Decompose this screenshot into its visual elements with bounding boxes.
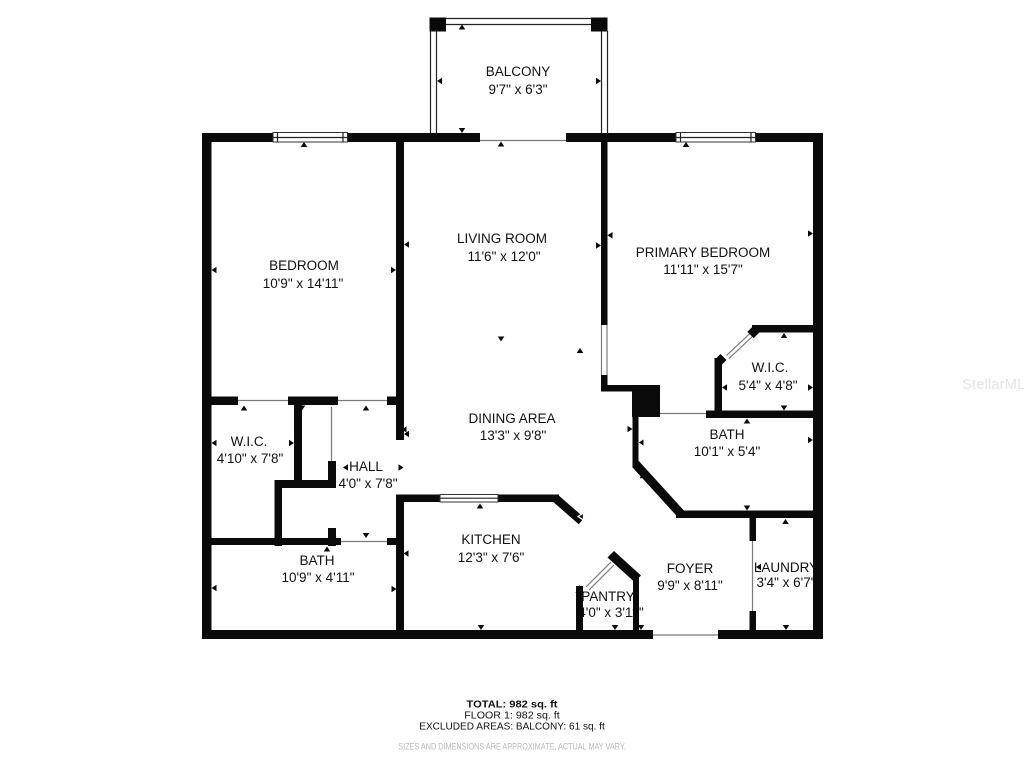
svg-text:StellarMLS: StellarMLS (962, 376, 1024, 393)
svg-text:DINING AREA: DINING AREA (468, 411, 555, 426)
svg-text:13'3" x 9'8": 13'3" x 9'8" (480, 428, 547, 443)
svg-text:4'0" x 7'8": 4'0" x 7'8" (338, 476, 397, 491)
svg-text:KITCHEN: KITCHEN (461, 532, 520, 547)
svg-text:11'6" x 12'0": 11'6" x 12'0" (467, 249, 540, 264)
svg-text:BALCONY: BALCONY (486, 64, 551, 79)
svg-text:PRIMARY BEDROOM: PRIMARY BEDROOM (636, 245, 771, 260)
svg-text:BEDROOM: BEDROOM (269, 258, 339, 273)
svg-text:W.I.C.: W.I.C. (752, 360, 789, 375)
svg-text:HALL: HALL (349, 459, 383, 474)
svg-text:EXCLUDED AREAS: BALCONY: 61 sq: EXCLUDED AREAS: BALCONY: 61 sq. ft (419, 720, 605, 732)
svg-text:3'4" x 6'7": 3'4" x 6'7" (756, 575, 815, 590)
svg-text:LAUNDRY: LAUNDRY (754, 560, 818, 575)
svg-text:W.I.C.: W.I.C. (231, 434, 268, 449)
svg-text:12'3" x 7'6": 12'3" x 7'6" (458, 550, 525, 565)
svg-text:5'4" x 4'8": 5'4" x 4'8" (738, 378, 797, 393)
svg-text:10'9" x 14'11": 10'9" x 14'11" (263, 276, 344, 291)
svg-text:4'10" x 7'8": 4'10" x 7'8" (217, 451, 284, 466)
svg-text:BATH: BATH (709, 427, 744, 442)
svg-text:9'7" x 6'3": 9'7" x 6'3" (488, 82, 547, 97)
svg-text:11'11" x 15'7": 11'11" x 15'7" (663, 262, 743, 277)
svg-text:LIVING ROOM: LIVING ROOM (457, 231, 547, 246)
svg-text:9'9" x 8'11": 9'9" x 8'11" (657, 578, 723, 593)
svg-text:SIZES AND DIMENSIONS ARE APPRO: SIZES AND DIMENSIONS ARE APPROXIMATE, AC… (398, 741, 626, 752)
svg-text:PANTRY: PANTRY (581, 589, 635, 604)
svg-text:FOYER: FOYER (667, 561, 714, 576)
svg-text:10'1" x 5'4": 10'1" x 5'4" (694, 444, 761, 459)
svg-text:10'9" x 4'11": 10'9" x 4'11" (281, 570, 354, 585)
svg-text:BATH: BATH (299, 553, 334, 568)
